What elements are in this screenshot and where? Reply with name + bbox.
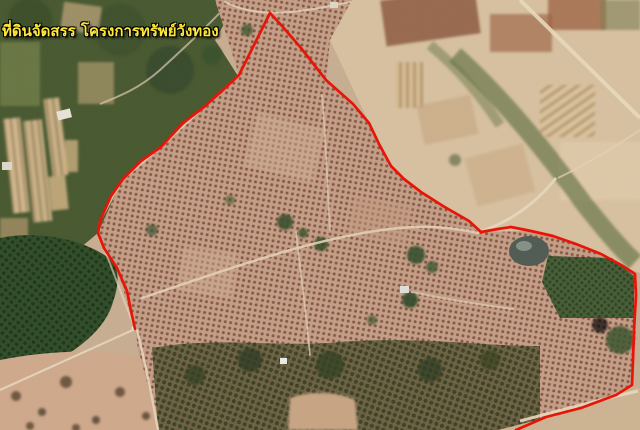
project-label: ที่ดินจัดสรร โครงการทรัพย์วังทอง [2, 22, 219, 40]
satellite-map-view: ที่ดินจัดสรร โครงการทรัพย์วังทอง [0, 0, 640, 430]
photo-grain [0, 0, 640, 430]
satellite-imagery [0, 0, 640, 430]
